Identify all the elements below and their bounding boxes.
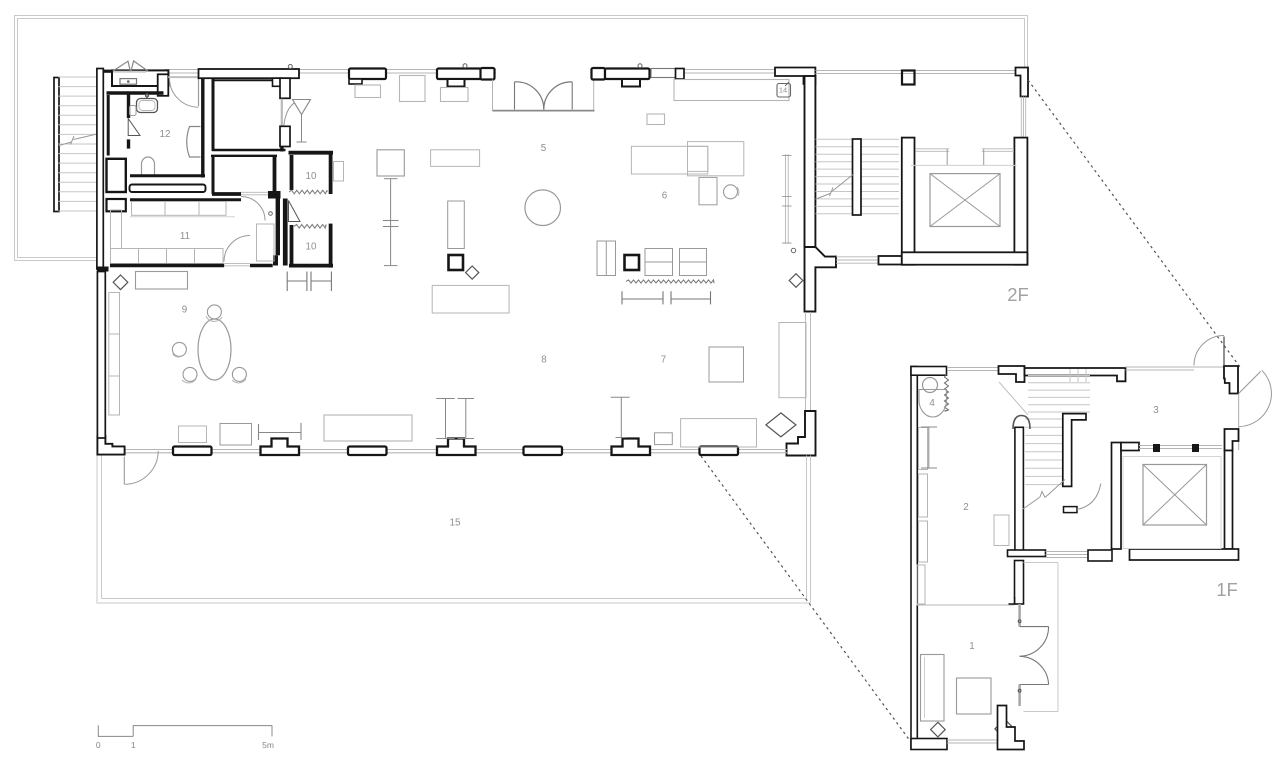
svg-text:0: 0 xyxy=(96,740,101,750)
svg-text:3: 3 xyxy=(1153,405,1159,416)
svg-text:1F: 1F xyxy=(1216,579,1238,600)
svg-text:2: 2 xyxy=(963,502,968,513)
svg-text:6: 6 xyxy=(662,191,668,202)
svg-text:5: 5 xyxy=(541,143,547,154)
svg-text:2F: 2F xyxy=(1007,284,1029,305)
svg-text:7: 7 xyxy=(661,355,666,366)
svg-text:1: 1 xyxy=(969,641,974,652)
svg-text:1: 1 xyxy=(131,740,136,750)
svg-text:9: 9 xyxy=(182,305,187,316)
svg-text:8: 8 xyxy=(541,355,547,366)
svg-text:10: 10 xyxy=(306,171,317,182)
svg-text:11: 11 xyxy=(180,231,190,242)
svg-text:14: 14 xyxy=(779,86,787,95)
svg-text:4: 4 xyxy=(929,398,935,409)
svg-text:5m: 5m xyxy=(262,740,274,750)
svg-text:12: 12 xyxy=(160,129,171,140)
svg-text:10: 10 xyxy=(306,242,317,253)
svg-text:15: 15 xyxy=(449,518,461,529)
